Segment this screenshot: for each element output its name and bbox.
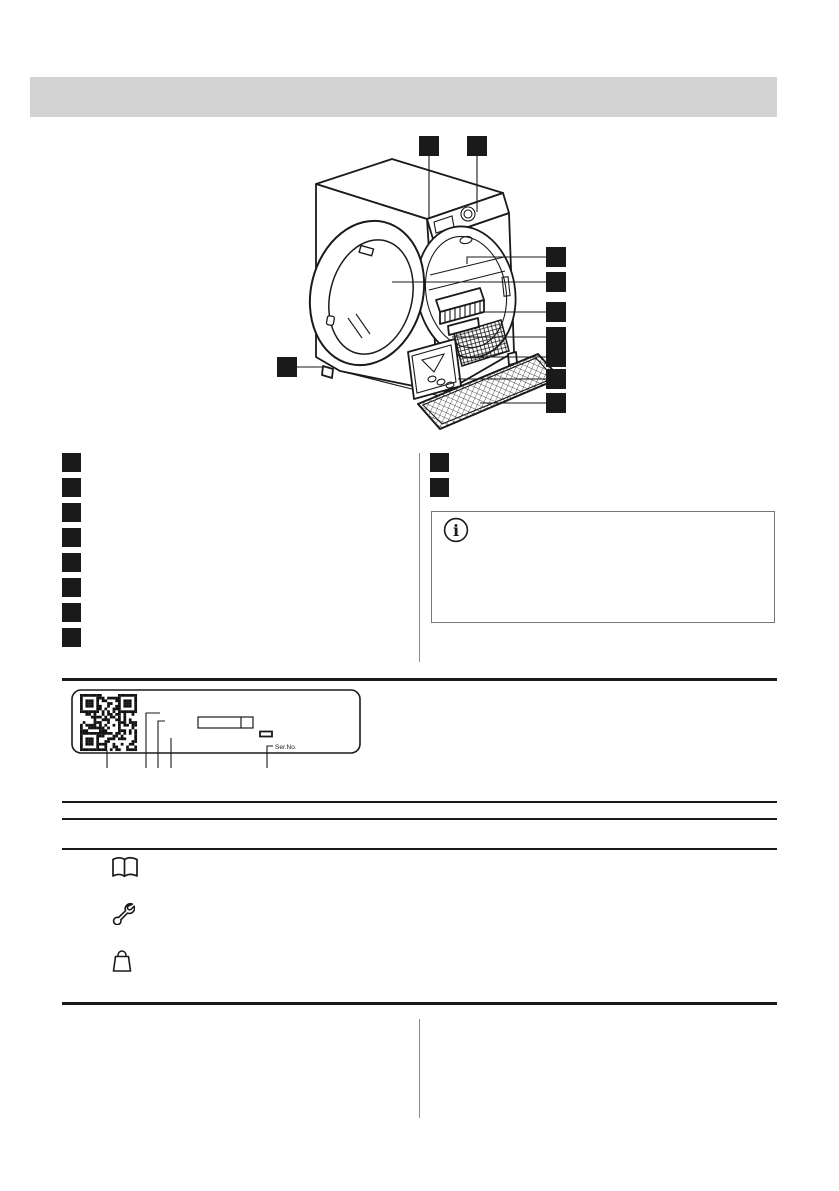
callout-square-1	[419, 136, 439, 156]
part-number-badge	[62, 553, 81, 572]
serial-number-label: Ser.No.	[275, 744, 297, 751]
part-number-badge	[62, 478, 81, 497]
parts-list-item	[62, 628, 89, 647]
parts-list-item	[62, 603, 89, 622]
parts-list-item	[62, 478, 89, 497]
manual-page: i Ser.No.	[0, 0, 839, 1191]
callout-square-9	[546, 393, 566, 413]
callout-square-3	[546, 247, 566, 267]
rating-plate-figure: Ser.No.	[62, 686, 372, 778]
parts-list-item	[430, 478, 457, 497]
part-number-badge	[62, 578, 81, 597]
section-rule-4	[62, 848, 777, 850]
chapter-heading-bar	[30, 77, 777, 117]
parts-list-right	[430, 453, 457, 497]
open-book-icon	[111, 856, 139, 880]
callout-square-2	[467, 136, 487, 156]
part-number-badge	[430, 453, 449, 472]
callout-square-5	[546, 302, 566, 322]
note-box: i	[431, 511, 775, 623]
door-latch	[326, 316, 334, 326]
section-rule-5	[62, 1002, 777, 1005]
parts-list-left	[62, 453, 89, 647]
parts-list-item	[62, 553, 89, 572]
dryer-diagram	[250, 128, 580, 440]
part-number-badge	[62, 453, 81, 472]
wrench-icon	[111, 901, 135, 925]
part-number-badge	[62, 603, 81, 622]
part-number-badge	[62, 628, 81, 647]
callout-square-7	[546, 347, 566, 367]
section-rule-3	[62, 818, 777, 820]
shopping-bag-icon	[111, 949, 133, 973]
info-icon: i	[443, 517, 469, 543]
part-number-badge	[430, 478, 449, 497]
part-number-badge	[62, 528, 81, 547]
callout-square-8	[546, 369, 566, 389]
callout-square-10	[277, 357, 297, 377]
bottom-column-divider	[419, 1019, 420, 1118]
section-rule-2	[62, 801, 777, 803]
parts-list-item	[430, 453, 457, 472]
section-rule-1	[62, 678, 777, 681]
part-number-badge	[62, 503, 81, 522]
callout-square-6	[546, 327, 566, 347]
parts-list-item	[62, 528, 89, 547]
callout-square-4	[546, 272, 566, 292]
parts-list-item	[62, 578, 89, 597]
parts-list-item	[62, 453, 89, 472]
parts-list-item	[62, 503, 89, 522]
adjustable-foot-left	[322, 366, 333, 378]
info-icon-glyph: i	[453, 521, 459, 540]
column-divider	[419, 453, 420, 662]
